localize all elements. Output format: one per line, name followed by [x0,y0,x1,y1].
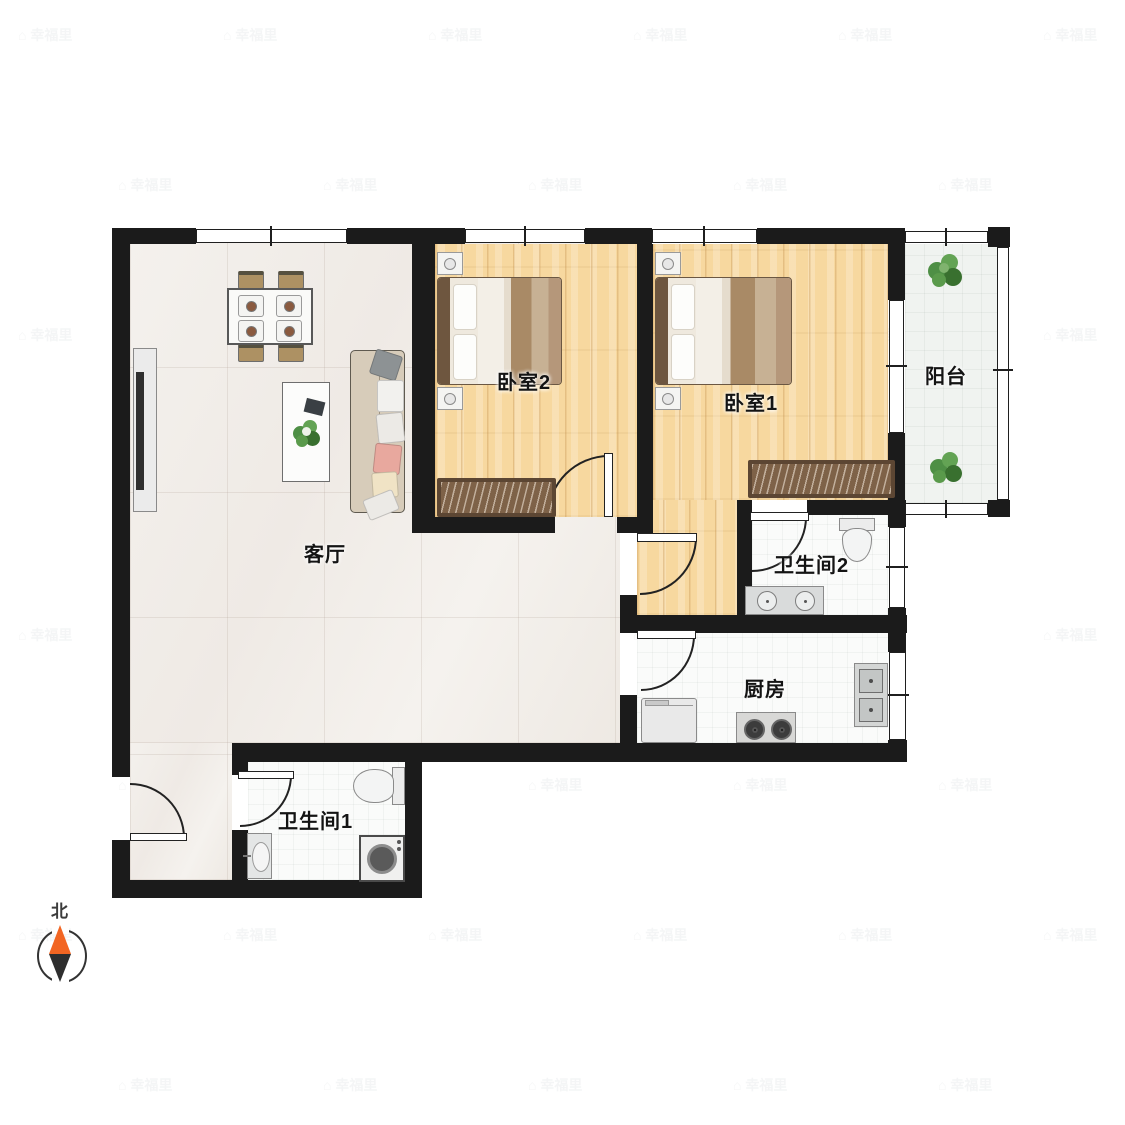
plate [238,295,264,317]
watermark: ⌂ 幸福里 [18,625,72,645]
bathroom1-sink-basin [252,842,270,872]
watermark: ⌂ 幸福里 [733,775,787,795]
wall-bedroom2-left [412,244,435,533]
watermark: ⌂ 幸福里 [428,25,482,45]
balcony-window-tick-bottom [945,500,947,518]
bed-pillow [453,334,477,380]
watermark: ⌂ 幸福里 [323,175,377,195]
watermark: ⌂ 幸福里 [18,25,72,45]
wall-kitchen-left [620,695,637,743]
kitchen-window-tick [886,694,909,696]
watermark: ⌂ 幸福里 [1043,625,1097,645]
watermark: ⌂ 幸福里 [938,175,992,195]
dining-chair [278,344,304,362]
bedroom2-nightstand [437,252,463,275]
kitchen-sink-basin [859,669,883,693]
living-room-window-tick [270,226,272,246]
wall-right-bathroom2-post [888,500,906,527]
washing-machine [359,835,405,882]
bedroom2-door-leaf [604,453,613,517]
sofa-pillow-white [376,412,406,445]
bedroom2-window-tick [524,226,526,246]
bedroom1-window-tick [703,226,705,246]
entry-door-leaf [130,833,187,841]
balcony-window-right [997,247,1009,500]
watermark: ⌂ 幸福里 [528,175,582,195]
watermark: ⌂ 幸福里 [838,925,892,945]
dining-chair [238,271,264,289]
wall-top-3 [585,228,652,244]
kitchen-sink-basin [859,698,883,722]
plate [276,320,302,342]
watermark: ⌂ 幸福里 [118,175,172,195]
wall-right-bedroom1-a [888,244,905,300]
floor-plan: ⌂ 幸福里⌂ 幸福里⌂ 幸福里⌂ 幸福里⌂ 幸福里⌂ 幸福里⌂ 幸福里⌂ 幸福里… [0,0,1125,1125]
label-bedroom2: 卧室2 [497,366,551,395]
plate [238,320,264,342]
bed-headboard [656,278,668,384]
watermark: ⌂ 幸福里 [223,25,277,45]
wall-bathroom1-left-b [232,830,248,898]
balcony-plant [928,450,966,486]
bed-pillow [671,284,695,330]
bathroom2-basin [757,591,777,611]
stove-burner [744,719,765,740]
bedroom1-bed [655,277,792,385]
compass-north-label: 北 [51,897,68,922]
watermark: ⌂ 幸福里 [428,925,482,945]
plate [276,295,302,317]
wall-bathroom2-top-b [807,500,888,515]
label-balcony: 阳台 [925,360,967,389]
watermark: ⌂ 幸福里 [633,25,687,45]
watermark: ⌂ 幸福里 [938,1075,992,1095]
label-bathroom1: 卫生间1 [278,805,353,834]
watermark: ⌂ 幸福里 [528,775,582,795]
balcony-window-tick-right [993,369,1013,371]
wall-bathroom1-right [405,743,422,898]
bathroom1-sink [247,833,272,879]
kitchen-window [889,652,906,740]
watermark: ⌂ 幸福里 [938,775,992,795]
compass-needle-north [49,925,71,954]
bed-pillow [671,334,695,380]
watermark: ⌂ 幸福里 [118,1075,172,1095]
tv [136,372,144,490]
wall-top-2 [347,228,465,244]
watermark: ⌂ 幸福里 [838,25,892,45]
balcony-post-bottom-right [988,500,1010,517]
bedroom2-nightstand [437,387,463,410]
kitchen-sink-counter [854,663,888,727]
fridge [641,698,697,743]
balcony-post-top-right [988,227,1010,247]
watermark: ⌂ 幸福里 [223,925,277,945]
coffee-table-plant [291,418,323,450]
stove-burner [771,719,792,740]
wall-bedroom2-bottom-a [412,517,555,533]
bathroom2-window-tick [886,566,908,568]
watermark: ⌂ 幸福里 [18,325,72,345]
watermark: ⌂ 幸福里 [323,1075,377,1095]
dining-chair [238,344,264,362]
wall-bottom-left [112,880,420,898]
watermark: ⌂ 幸福里 [1043,325,1097,345]
label-bathroom2: 卫生间2 [774,549,849,578]
washing-machine-knob [397,840,401,844]
wall-bedroom-divider [637,244,653,517]
bedroom2-wardrobe [437,478,556,517]
washing-machine-knob [397,847,401,851]
bathroom2-basin [795,591,815,611]
wall-hall-a [620,517,637,527]
bathroom1-toilet-bowl [353,769,394,803]
bed-sheet [696,278,724,384]
bathroom2-door-leaf [750,512,809,521]
watermark: ⌂ 幸福里 [633,925,687,945]
kitchen-door-leaf [637,630,696,639]
sofa-pillow-pink [373,443,403,476]
compass-needle-south [49,954,71,982]
bathroom1-door-leaf [238,771,294,779]
label-kitchen: 厨房 [744,673,786,702]
bedroom1-nightstand [655,252,681,275]
label-bedroom1: 卧室1 [724,387,778,416]
watermark: ⌂ 幸福里 [733,175,787,195]
bathroom1-sink-faucet [243,855,251,857]
bed-headboard [438,278,450,384]
washing-machine-drum [367,844,397,874]
bedroom1-door-leaf [637,533,697,542]
watermark: ⌂ 幸福里 [1043,25,1097,45]
wall-bottom-main [232,743,907,762]
sofa-pillow-white [377,380,404,412]
watermark: ⌂ 幸福里 [1043,925,1097,945]
bedroom1-nightstand [655,387,681,410]
bed-pillow [453,284,477,330]
balcony-plant [926,252,966,290]
bedroom1-balcony-window-tick [886,365,907,367]
wall-left-upper [112,228,130,777]
label-living-room: 客厅 [304,538,346,567]
balcony-window-tick-top [945,228,947,246]
bed-blanket [722,278,791,384]
dining-chair [278,271,304,289]
fridge-handle [645,700,669,706]
watermark: ⌂ 幸福里 [733,1075,787,1095]
wall-top-4 [757,228,905,244]
bedroom1-wardrobe [748,460,895,498]
wall-right-kitchen-corner [888,740,907,762]
watermark: ⌂ 幸福里 [528,1075,582,1095]
